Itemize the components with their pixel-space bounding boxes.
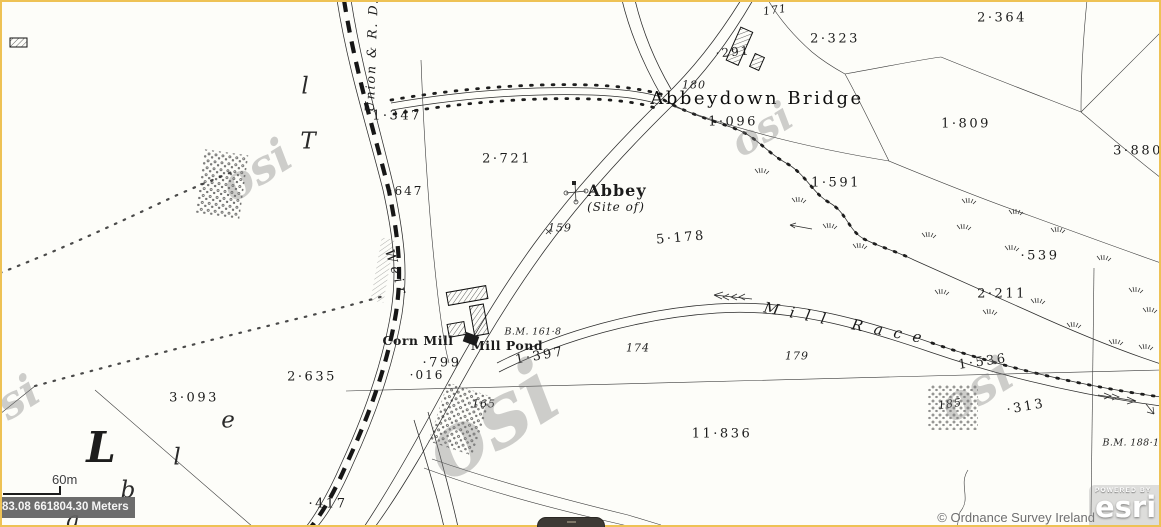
parcel-0-539: ·539	[1021, 250, 1060, 263]
benchmark-188-1: B.M. 188·1	[1103, 438, 1160, 448]
bottom-widget-button[interactable]	[537, 517, 605, 527]
parcel-2-323: 2·323	[810, 33, 860, 46]
parcel-1-591: 1·591	[811, 177, 861, 190]
scale-bar-label: 60m	[52, 472, 77, 487]
parcel-0-016: ·016	[410, 369, 445, 381]
map-canvas[interactable]: Union & R. D.1·347·6472·721Abbeydown Bri…	[0, 0, 1161, 527]
scale-bar-line	[3, 486, 61, 495]
parcel-1-347: 1·347	[372, 110, 422, 123]
esri-logo-text: esri	[1095, 494, 1161, 522]
benchmark-161-8: B.M. 161·8	[505, 327, 562, 337]
spot-height-159: 159	[548, 223, 572, 234]
osi-watermark: osi	[0, 369, 48, 444]
spot-height-171: 171	[762, 3, 787, 17]
townland-initial-letter: L	[86, 427, 116, 469]
boundary-label-union-rd: Union & R. D.	[364, 0, 380, 112]
coordinate-readout: 83.08 661804.30 Meters	[0, 497, 135, 518]
place-abbey: Abbey	[587, 183, 646, 199]
townland-letter: l	[301, 76, 308, 99]
parcel-5-178: 5·178	[656, 229, 707, 246]
parcel-2-721: 2·721	[482, 153, 532, 166]
spot-height-179: 179	[785, 351, 809, 362]
townland-letter: e	[221, 410, 235, 433]
spot-height-180: 180	[682, 80, 706, 91]
parcel-11-836: 11·836	[692, 428, 753, 441]
parcel-2-635: 2·635	[287, 371, 337, 384]
townland-letter: T	[300, 131, 315, 154]
parcel-3-880: 3·880	[1113, 145, 1161, 158]
parcel-3-093: 3·093	[169, 392, 219, 405]
esri-logo[interactable]: POWERED BY esri	[1089, 485, 1161, 527]
place-mill-race: Mill Race	[762, 300, 933, 347]
parcel-2-211: 2·211	[977, 288, 1027, 301]
spot-height-174: 174	[626, 343, 650, 354]
parcel-0-417: ·417	[309, 498, 348, 511]
widget-notch	[567, 521, 576, 523]
parcel-0-647: ·647	[389, 185, 424, 197]
place-abbey-site-of: (Site of)	[587, 201, 645, 213]
attribution-text: © Ordnance Survey Ireland	[937, 510, 1095, 525]
place-corn-mill: Corn Mill	[383, 335, 454, 348]
osi-watermark: osi	[212, 131, 299, 209]
townland-letter: l	[173, 447, 180, 470]
parcel-0-291: ·291	[715, 45, 751, 60]
map-labels-layer: Union & R. D.1·347·6472·721Abbeydown Bri…	[0, 0, 1161, 527]
parcel-1-809: 1·809	[941, 118, 991, 131]
place-weir: Weir	[382, 248, 410, 300]
parcel-2-364: 2·364	[977, 12, 1027, 25]
